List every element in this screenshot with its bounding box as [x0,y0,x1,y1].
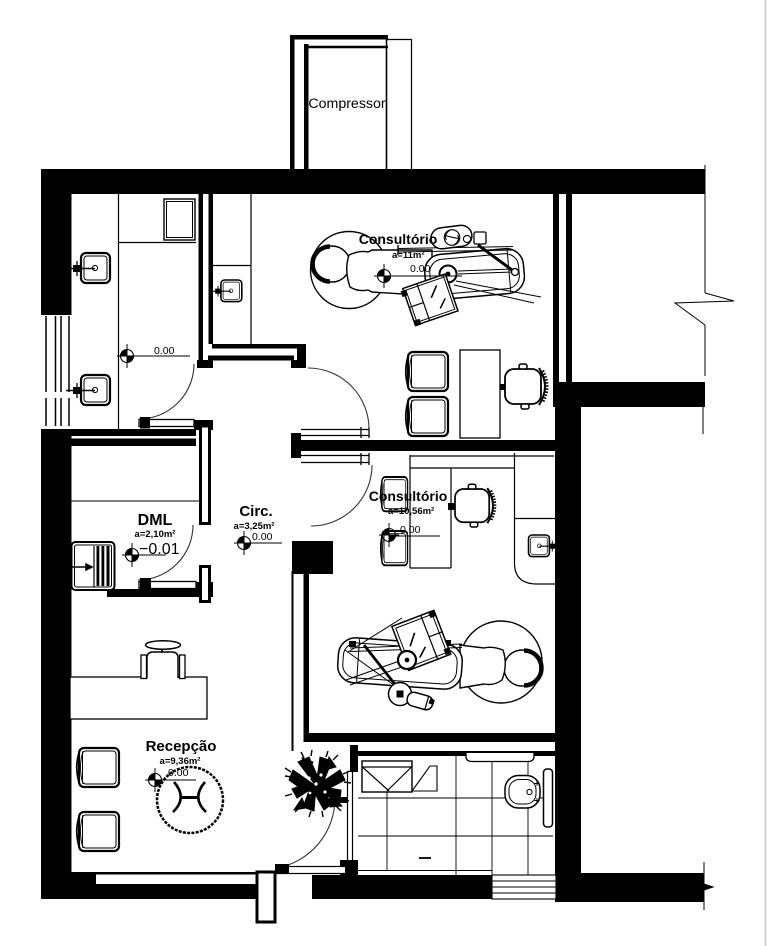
svg-text:0.00: 0.00 [168,767,189,779]
svg-text:a=11m²: a=11m² [392,250,425,261]
svg-text:0.00: 0.00 [252,531,273,543]
svg-text:DML: DML [138,512,173,529]
svg-text:Consultório: Consultório [369,488,448,504]
svg-text:−0.01: −0.01 [139,541,180,558]
svg-text:0.00: 0.00 [400,524,421,536]
svg-text:a=2,10m²: a=2,10m² [135,529,176,540]
svg-text:a=9,36m²: a=9,36m² [160,756,201,767]
svg-text:Recepção: Recepção [146,738,217,755]
svg-text:Consultório: Consultório [359,231,438,247]
svg-text:Compressor: Compressor [308,96,386,112]
svg-text:a=10,56m²: a=10,56m² [388,506,434,517]
svg-text:0.00: 0.00 [410,263,431,275]
svg-text:0.00: 0.00 [154,345,175,357]
svg-text:Circ.: Circ. [239,503,272,520]
